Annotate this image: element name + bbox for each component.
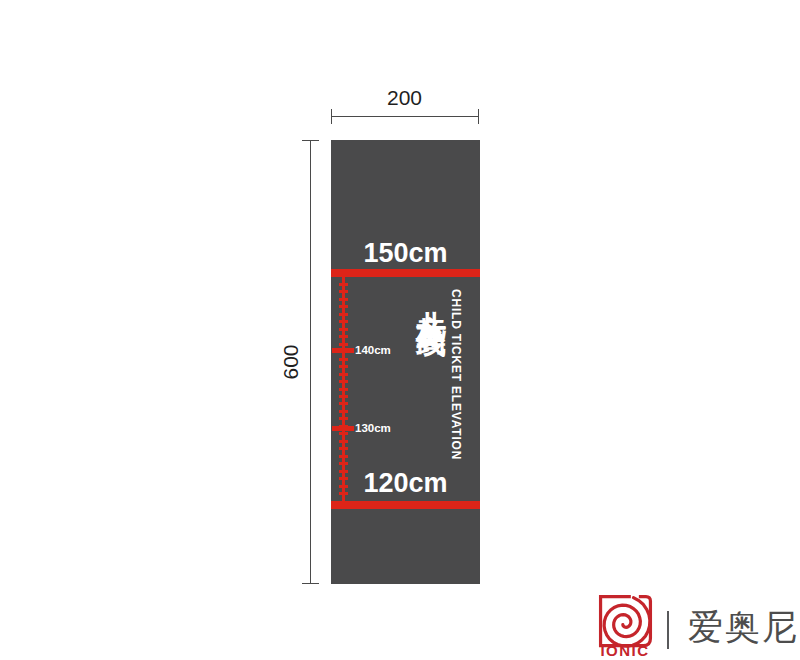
bottom-red-line	[331, 501, 480, 509]
top-red-line	[331, 269, 480, 277]
ruler-minor-tick	[339, 395, 348, 398]
ruler-minor-tick	[339, 290, 348, 293]
ruler-minor-tick	[339, 283, 348, 286]
width-dimension-line	[332, 116, 479, 117]
ruler-minor-tick	[339, 313, 348, 316]
logo-wordmark: IONIC	[589, 643, 661, 659]
ruler-minor-tick	[339, 417, 348, 420]
ruler-minor-tick	[339, 335, 348, 338]
ruler-minor-tick	[339, 373, 348, 376]
ruler-minor-tick	[339, 402, 348, 405]
height-dimension-cap-top	[302, 140, 319, 141]
ruler-minor-tick	[339, 320, 348, 323]
brand-divider	[667, 611, 669, 649]
ruler-minor-tick	[339, 447, 348, 450]
bottom-height-label: 120cm	[331, 469, 480, 497]
ruler-minor-tick	[339, 365, 348, 368]
sign-panel: 150cm 140cm 130cm 儿童标高线 CHILD TICKET ELE…	[331, 140, 480, 584]
ruler-minor-tick	[339, 298, 348, 301]
height-dimension-label: 600	[267, 334, 315, 390]
ruler-minor-tick	[339, 462, 348, 465]
ruler-minor-tick	[339, 425, 348, 428]
sign-title-english: CHILD TICKET ELEVATION	[447, 289, 465, 484]
top-height-label: 150cm	[331, 239, 480, 267]
ruler-minor-tick	[339, 380, 348, 383]
width-dimension-label: 200	[331, 86, 478, 112]
ruler-minor-tick	[339, 343, 348, 346]
ruler-minor-tick	[339, 440, 348, 443]
ruler-minor-tick	[339, 305, 348, 308]
ruler-minor-tick	[339, 350, 348, 353]
ruler-label-140: 140cm	[355, 343, 401, 357]
ruler-minor-tick	[339, 328, 348, 331]
sign-title-chinese: 儿童标高线	[413, 286, 449, 466]
ruler-minor-tick	[339, 410, 348, 413]
ruler-label-130: 130cm	[355, 421, 401, 435]
ruler-minor-tick	[339, 455, 348, 458]
ruler-minor-tick	[339, 358, 348, 361]
height-dimension-cap-bottom	[302, 583, 319, 584]
ruler-minor-tick	[339, 388, 348, 391]
ruler-minor-tick	[339, 432, 348, 435]
brand-name-chinese: 爱奥尼	[688, 606, 800, 648]
width-dimension-cap-right	[478, 109, 479, 124]
